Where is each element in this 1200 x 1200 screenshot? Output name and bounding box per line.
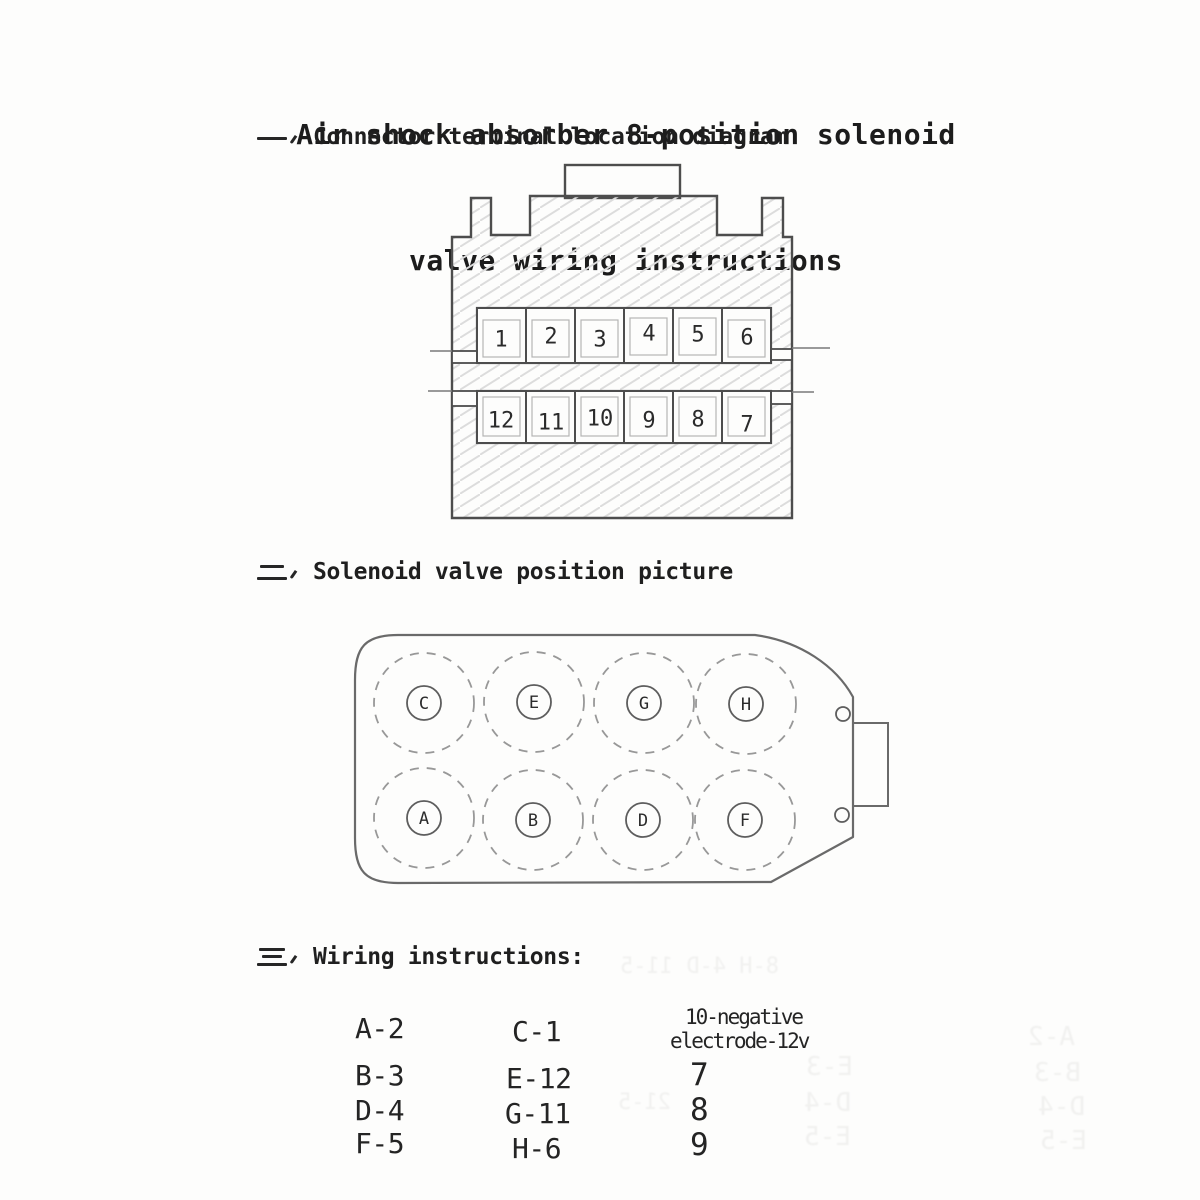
terminal-number: 5 — [691, 323, 704, 348]
instruction-sheet: Air shock absorber 8-position solenoid v… — [0, 0, 1200, 1200]
ground-pin: 8 — [690, 1092, 709, 1128]
terminal-number: 7 — [740, 413, 753, 438]
wiring-pair: H-6 — [512, 1132, 561, 1165]
solenoid-letter: G — [639, 694, 649, 714]
ghost-text: D-4 — [804, 1088, 851, 1118]
ghost-text: A-2 — [1028, 1022, 1075, 1052]
terminal-number: 6 — [740, 326, 753, 351]
channel-notch — [770, 349, 792, 360]
solenoid-letter: E — [529, 693, 539, 713]
ghost-text: E-5 — [804, 1122, 851, 1152]
negative-electrode-note-line1: 10-negative — [685, 1005, 802, 1029]
ghost-text: E-5 — [1040, 1126, 1087, 1156]
connector-top-tab — [565, 165, 680, 198]
solenoid-letter: D — [638, 811, 648, 831]
ground-pin: 9 — [690, 1127, 709, 1163]
ghost-text: B-3 — [1034, 1058, 1081, 1088]
solenoid-diagram: C E G H A B D F — [355, 635, 888, 883]
wiring-pair: D-4 — [355, 1094, 404, 1127]
solenoid-letter: B — [528, 811, 538, 831]
terminal-number: 3 — [593, 328, 606, 353]
solenoid-letter: F — [740, 811, 750, 831]
terminal-number: 2 — [544, 325, 557, 350]
wiring-pair: C-1 — [512, 1015, 561, 1048]
ghost-text: E-3 — [806, 1052, 853, 1082]
terminal-number: 11 — [538, 411, 565, 436]
solenoid-letter: H — [741, 695, 751, 715]
terminal-row-top: 1 2 3 4 5 6 — [477, 308, 771, 363]
channel-notch — [452, 391, 478, 406]
terminal-number: 1 — [494, 328, 507, 353]
terminal-number: 12 — [488, 409, 515, 434]
connector-diagram: 1 2 3 4 5 6 12 — [428, 165, 830, 518]
solenoid-letter: C — [419, 694, 429, 714]
negative-electrode-note-line2: electrode-12v — [670, 1029, 808, 1053]
ghost-text: 8-H 4-D 11-5 — [620, 954, 779, 979]
valve-connector-tab — [853, 723, 888, 806]
screw-hole — [836, 707, 850, 721]
screw-hole — [835, 808, 849, 822]
solenoid-letter: A — [419, 809, 429, 829]
channel-notch — [452, 351, 478, 363]
channel-notch — [770, 391, 792, 404]
wiring-pair: F-5 — [355, 1127, 404, 1160]
terminal-number: 10 — [587, 407, 614, 432]
wiring-pair: A-2 — [355, 1012, 404, 1045]
terminal-number: 4 — [642, 322, 655, 347]
terminal-number: 9 — [642, 409, 655, 434]
diagram-layer: 1 2 3 4 5 6 12 — [0, 0, 1200, 1200]
ghost-text: 21-5 — [618, 1090, 671, 1115]
terminal-number: 8 — [691, 408, 704, 433]
wiring-pair: G-11 — [505, 1097, 570, 1130]
wiring-pair: E-12 — [506, 1062, 571, 1095]
terminal-row-bottom: 12 11 10 9 8 7 — [477, 391, 771, 443]
wiring-pair: B-3 — [355, 1059, 404, 1092]
ground-pin: 7 — [690, 1057, 709, 1093]
ghost-text: D-4 — [1038, 1092, 1085, 1122]
